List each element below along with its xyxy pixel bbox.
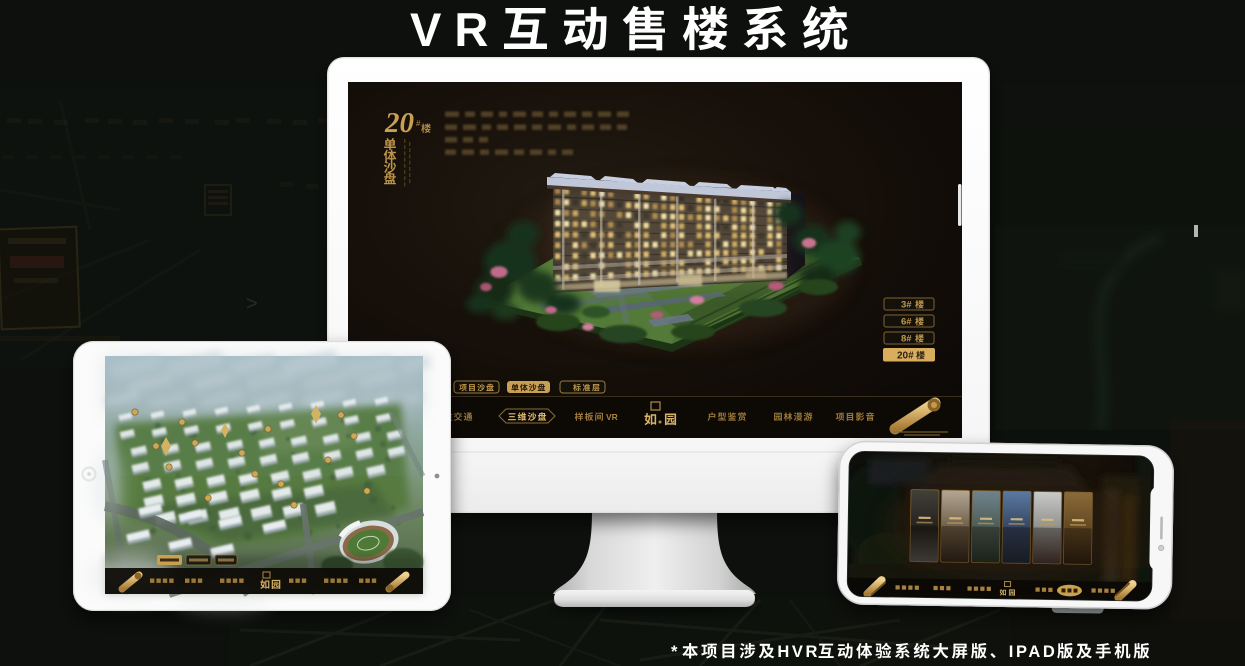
svg-text:>: > <box>246 293 258 315</box>
svg-text:3#: 3# <box>901 300 912 311</box>
svg-text:*: * <box>671 643 680 661</box>
svg-text:IPAD: IPAD <box>1009 643 1058 661</box>
svg-text:6#: 6# <box>901 317 912 328</box>
svg-text:HVR: HVR <box>777 643 820 661</box>
svg-text:20#: 20# <box>897 351 914 362</box>
svg-text:#: # <box>416 119 421 128</box>
svg-text:20: 20 <box>384 107 414 139</box>
svg-text:VR: VR <box>410 3 501 56</box>
svg-text:VR: VR <box>606 412 618 422</box>
svg-text:8#: 8# <box>901 334 912 345</box>
